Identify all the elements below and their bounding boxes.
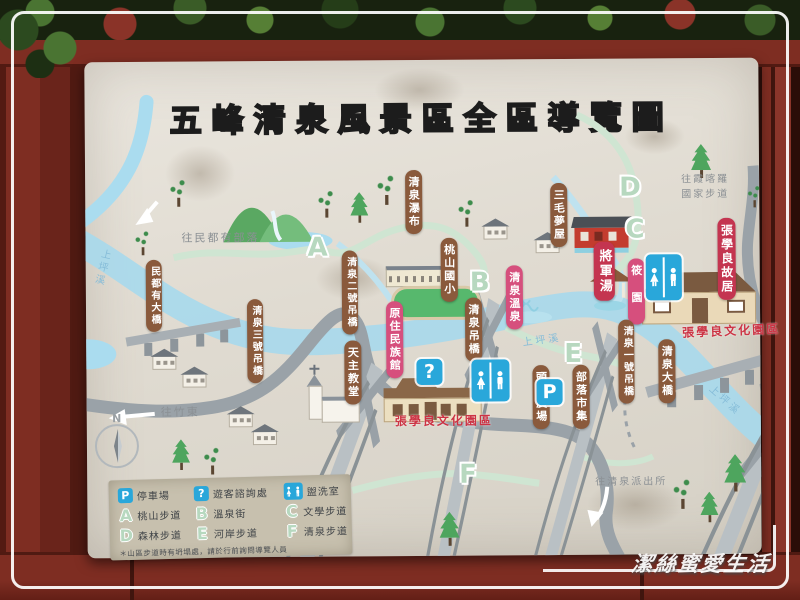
photo-of-map-sign: 五峰清泉風景區全區導覽圖 bbox=[0, 0, 800, 600]
sign-xiao-garden: 筱園 bbox=[628, 258, 645, 324]
legend-item-trail-f: F 清泉步道 bbox=[285, 520, 353, 541]
map-board: 五峰清泉風景區全區導覽圖 bbox=[84, 58, 761, 559]
tree-round bbox=[131, 226, 155, 256]
trail-a-badge: A bbox=[118, 506, 133, 525]
info-icon: ? bbox=[416, 359, 442, 385]
legend-label: 桃山步道 bbox=[137, 507, 181, 523]
legend-item-info: ? 遊客諮詢處 bbox=[194, 482, 280, 503]
trail-e-badge: E bbox=[195, 524, 210, 543]
sign-indigenous-hall: 原住民族館 bbox=[386, 301, 404, 378]
toilet-icon bbox=[646, 254, 682, 300]
legend-item-trail-a: A 桃山步道 bbox=[118, 504, 190, 525]
legend-item-parking: P 停車場 bbox=[118, 484, 190, 505]
legend-item-toilet: 盥洗室 bbox=[284, 480, 352, 501]
sign-bridge-no1: 清泉一號吊橋 bbox=[618, 320, 635, 404]
toilet-icon bbox=[284, 482, 303, 499]
sign-big-bridge: 清泉大橋 bbox=[658, 339, 675, 403]
tree-round bbox=[744, 181, 765, 208]
legend-label: 河岸步道 bbox=[214, 525, 258, 541]
sign-qingquan-waterfall: 清泉瀑布 bbox=[405, 170, 422, 234]
house bbox=[152, 356, 176, 370]
sign-mindouyou-bridge: 民都有大橋 bbox=[146, 260, 163, 332]
foliage-corner bbox=[0, 0, 95, 78]
toilet-icon bbox=[471, 359, 509, 401]
sign-sanmao-house: 三毛夢屋 bbox=[550, 183, 567, 247]
tree-round bbox=[313, 185, 339, 218]
label-to-xiakaluo: 往霞喀羅 國家步道 bbox=[681, 170, 729, 200]
tree-round bbox=[668, 472, 697, 508]
compass-needle bbox=[114, 429, 122, 463]
legend-label: 森林步道 bbox=[138, 527, 182, 543]
legend-item-trail-b: B 溫泉街 bbox=[194, 502, 280, 523]
legend-label: 盥洗室 bbox=[307, 482, 340, 498]
sign-hot-spring: 清泉溫泉 bbox=[506, 265, 523, 329]
legend-panel: P 停車場 A 桃山步道 D 森林步道 ? 遊客諮詢處 B 溫泉街 bbox=[108, 474, 352, 560]
legend-label: 文學步道 bbox=[303, 502, 347, 518]
parking-icon: P bbox=[118, 488, 133, 503]
tree-round bbox=[199, 441, 225, 474]
compass-north-label: N bbox=[97, 412, 137, 425]
legend-grid: P 停車場 A 桃山步道 D 森林步道 ? 遊客諮詢處 B 溫泉街 bbox=[118, 480, 345, 545]
sign-bridge-no2: 清泉二號吊橋 bbox=[342, 250, 359, 334]
marker-c: C bbox=[625, 214, 644, 244]
marker-d: D bbox=[619, 172, 641, 202]
tree-round bbox=[372, 169, 401, 205]
tree-pine bbox=[439, 512, 459, 546]
sign-zhang-residence: 張學良故居 bbox=[717, 218, 736, 300]
label-zhang-park-center: 張學良文化園區 bbox=[395, 412, 493, 430]
legend-item-trail-d: D 森林步道 bbox=[119, 524, 191, 545]
tree-round bbox=[453, 194, 479, 227]
house bbox=[253, 431, 277, 445]
legend-label: 停車場 bbox=[137, 487, 170, 503]
trail-c-badge: C bbox=[284, 502, 299, 521]
tree-pine bbox=[724, 454, 746, 492]
trail-d-badge: D bbox=[119, 526, 134, 545]
sign-bridge-no3: 清泉三號吊橋 bbox=[247, 299, 264, 383]
parking-icon: P bbox=[536, 379, 562, 405]
tree-pine bbox=[700, 492, 718, 523]
tree-pine bbox=[350, 192, 368, 223]
sign-general-bath: 將軍湯 bbox=[594, 242, 615, 301]
watermark: 潔絲蜜愛生活 bbox=[630, 548, 772, 578]
label-to-xiakaluo-line2: 國家步道 bbox=[681, 185, 729, 200]
tree-round bbox=[165, 174, 191, 207]
marker-f: F bbox=[459, 460, 477, 490]
legend-label: 清泉步道 bbox=[304, 522, 348, 538]
marker-b: B bbox=[470, 268, 490, 298]
sign-taoshan-school: 桃山國小 bbox=[441, 238, 458, 302]
label-to-zhudong: 往竹東 bbox=[161, 404, 200, 420]
sign-church: 天主教堂 bbox=[344, 340, 361, 404]
house bbox=[229, 413, 253, 427]
info-icon: ? bbox=[194, 486, 209, 501]
trail-f-badge: F bbox=[285, 522, 300, 541]
trail-b-badge: B bbox=[194, 504, 209, 523]
wood-frame-left bbox=[0, 0, 88, 600]
wood-frame-right bbox=[758, 0, 800, 600]
marker-a: A bbox=[307, 233, 327, 263]
foliage-top bbox=[0, 0, 800, 40]
legend-label: 溫泉街 bbox=[213, 505, 246, 521]
sign-tribal-market: 部落市集 bbox=[572, 365, 589, 429]
house bbox=[483, 225, 507, 239]
legend-item-trail-c: C 文學步道 bbox=[284, 500, 352, 521]
label-to-police: 往清泉派出所 bbox=[595, 472, 667, 488]
tree-pine bbox=[172, 439, 190, 470]
label-to-mindouyou: 往民都有部落 bbox=[181, 229, 259, 246]
legend-item-trail-e: E 河岸步道 bbox=[195, 522, 281, 543]
house bbox=[182, 374, 206, 388]
legend-label: 遊客諮詢處 bbox=[213, 484, 268, 500]
sign-qingquan-bridge: 清泉吊橋 bbox=[465, 298, 482, 362]
compass-rose: N bbox=[95, 424, 139, 468]
label-to-xiakaluo-line1: 往霞喀羅 bbox=[681, 170, 729, 185]
